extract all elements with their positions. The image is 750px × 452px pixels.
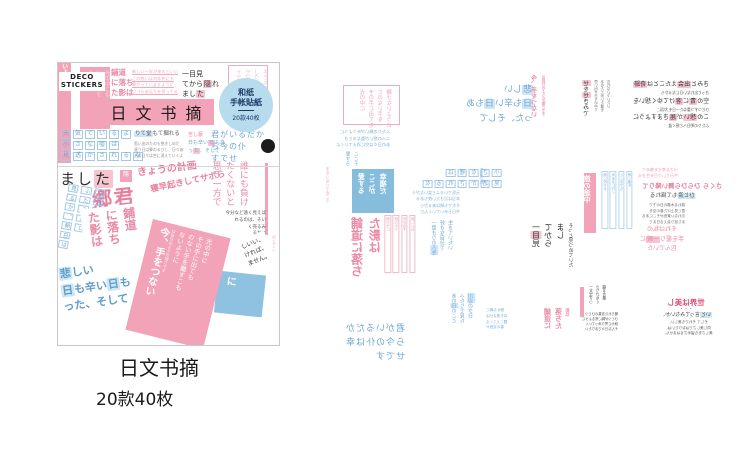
product-image: DECO STICKERS 日文书摘 和纸 手帐貼紙 20款40枚 今、手をつな…: [0, 0, 750, 452]
sheet-hodou-bold: 鋪道に落ちた影は: [348, 217, 385, 267]
badge: 和纸 手帐貼紙 20款40枚: [219, 78, 273, 132]
sheet-jinsei-cols: 一度きりの人生好きな自分で生きていたい: [430, 220, 456, 280]
sheet-pink-small-lines: 小さな幸せを集めて今日という日を生きる: [638, 167, 678, 179]
caption-title: 日文书摘: [119, 352, 199, 381]
underlined-pink-lines: 新しい一年が来るといいこの想いは何年先にも繋がっていますようにいつもあなたを思っ…: [132, 69, 178, 96]
badge-line-2: 手帐貼紙: [230, 98, 262, 108]
brand-label: DECO STICKERS: [59, 72, 105, 91]
sheet-boxed-rows: 小さな嘘は見透かされるな: [422, 168, 503, 190]
sheet-sekai-heading: 世界は美し・・・: [656, 298, 716, 313]
sheet-kawabe-cols: あの日のことふたりで見た川辺の夕日: [450, 293, 476, 355]
sheet-blue-small-lines-3: 静かな朝に耳を澄ませば聞こえてくる春の足音が: [486, 308, 528, 331]
badge-line-1: 和纸: [238, 88, 254, 98]
sheet-blue-square: 愛するここが幸福だ: [352, 169, 394, 213]
sheet-seikatsu-col: 生活され: [477, 168, 485, 208]
brand-line-2: STICKERS: [59, 81, 105, 89]
sheet-rows-trio: きみと出会えたことは奇跡きっと忘れない日になるから空の青に溶けてゆく想いをひとつ…: [633, 80, 709, 130]
sheet-hitonami-line: ひと涙もて揺れる: [650, 193, 696, 200]
kanashii-mini-1: 苦し厭: [188, 132, 203, 139]
sheet-blue-small-lines-1: ふたりの願いが叶うように二人の想いが重なるときあの日々は空に消えていくよ: [336, 129, 390, 149]
badge-count: 20款40枚: [232, 113, 259, 122]
blue-corner-sticker: に: [214, 271, 266, 318]
hitori-block-heading: りて堂もて摑れる: [134, 131, 180, 138]
small-pink-char-box: 隠: [120, 170, 132, 182]
black-circle-badge: [261, 139, 275, 153]
sheet-sakura-small: 揺れる木漏れ日の下で君と見上げた春の空を忘れない景色がそこにあるまた巡り会える日…: [642, 203, 685, 225]
boxed-blue-rows: 元気でいるよ小さな嘘は見透かされるな: [60, 129, 144, 162]
sheet-kimiga-block: 君がいるだから今の仆は幸せです: [345, 323, 405, 365]
sheet-hitomi-vblock: 一目見てからましそっと見つめていた: [530, 223, 577, 299]
sheet-pink-box: 光の中にその手に出てもとのない手を離さないように: [343, 85, 400, 125]
brand-line-1: DECO: [59, 73, 105, 81]
sheet-tabi-bar: 旅の途中: [584, 173, 596, 233]
package-cover: DECO STICKERS 日文书摘 和纸 手帐貼紙 20款40枚 今、手をつな…: [57, 62, 280, 346]
sticker-sheet: 光の中にその手に出てもとのない手を離さないようにふたりの願いが叶うように二人の想…: [320, 55, 748, 400]
sheet-blue-small-lines-2: 元気でいるよと笑いながら本当は泣きたい夜もあるそれでも朝は来るから今日も歩いてい…: [412, 190, 460, 216]
sheet-isshun-lines: それは私の手を握り一瞬に包んでいた: [618, 225, 706, 254]
package-divider: [58, 166, 279, 167]
sheet-strip-cols-2: 風に吹かれ気ままに行くどこまでも続く道を: [600, 171, 634, 229]
sheet-tiny-cols-1: 思い出す日々の中であなたと歩いた道を忘れないでいたい: [592, 80, 612, 130]
sheet-hodou-small: 鋪道に落ちた影は: [542, 308, 573, 350]
hodou-header-lines: 鋪道に落ちた影は: [111, 68, 134, 97]
sheet-sekai-small: そして それでも美しい、同じ美しさではなりたいは、美しさをも留めざるはません、: [645, 320, 730, 337]
hitori-block-lines: 思い出のたのも抱きしめた違う日は夢のるびし、日々ああの日々は空に消えていくよ: [134, 141, 183, 159]
sheet-sakura-lines: さくら ひらひら舞い降りて: [642, 182, 722, 191]
sheet-black-list: 綴られた言葉のひとつひとつが胸に残るように静かに寄り添っていくそんな日々でありた…: [582, 312, 618, 332]
package-title: 日文书摘: [98, 99, 214, 125]
kanashii-large: 悲しい日も辛い日もった、そして: [57, 254, 137, 320]
badge-divider: [238, 110, 254, 111]
sheet-pink-thin-col: 手をつないで歩こう: [323, 167, 331, 215]
caption-count: 20款40枚: [96, 385, 173, 410]
sheet-tewotsunai-mini: 今、手をつないは自分のような強さです: [530, 75, 548, 133]
hitomi-header-lines: 一目見てから隠れました: [182, 69, 219, 99]
sheet-strip-cols-1: 朝の光に誘われて歩き出す新しい日: [383, 215, 417, 273]
sheet-sekai-line: いと言ってみないか、: [656, 312, 716, 319]
sheet-kanashii-block: 悲しい日も辛い日もあった、そして: [425, 83, 533, 126]
